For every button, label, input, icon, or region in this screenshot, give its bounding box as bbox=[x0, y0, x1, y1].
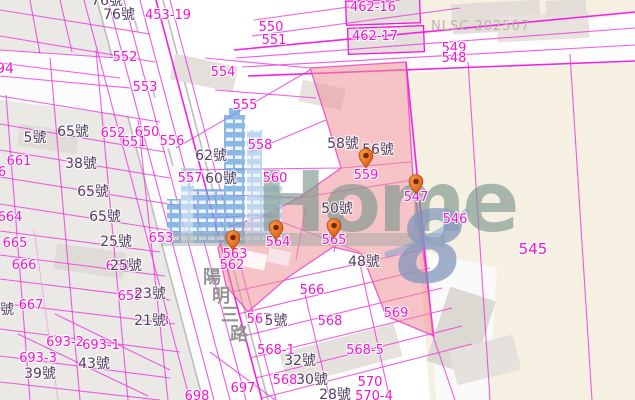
house-number-label: 58號 bbox=[327, 136, 359, 152]
parcel-label: 557 bbox=[178, 171, 203, 186]
parcel-label: 552 bbox=[113, 50, 138, 65]
house-number-label: 65號 bbox=[89, 209, 121, 225]
cadastral-map-canvas[interactable]: Home 8 NLSC 202507 陽明三路 453-19550551462-… bbox=[0, 0, 635, 400]
watermark-logo-numeral: 8 bbox=[396, 189, 466, 306]
house-number-label: 60號 bbox=[205, 171, 237, 187]
parcel-label: 553 bbox=[133, 80, 158, 95]
parcel-label: 664 bbox=[0, 210, 22, 225]
house-number-label: 30號 bbox=[296, 372, 328, 388]
parcel-label: 697 bbox=[231, 381, 256, 396]
parcel-label: 560 bbox=[263, 171, 288, 186]
house-number-label: 32號 bbox=[284, 353, 316, 369]
road-name-char: 三 bbox=[221, 305, 239, 326]
parcel-label: 653 bbox=[149, 231, 174, 246]
map-viewport[interactable]: Home 8 NLSC 202507 陽明三路 453-19550551462-… bbox=[0, 0, 635, 400]
parcel-label: 556 bbox=[160, 134, 185, 149]
parcel-label: 563 bbox=[223, 247, 248, 262]
house-number-label: 76號 bbox=[103, 7, 135, 23]
parcel-label: 462-17 bbox=[352, 29, 398, 44]
house-number-label: 38號 bbox=[65, 156, 97, 172]
house-number-label: 39號 bbox=[24, 366, 56, 382]
road-name-char: 陽 bbox=[203, 267, 221, 288]
nlsc-watermark-text: NLSC 202507 bbox=[431, 19, 530, 34]
parcel-label: 559 bbox=[354, 168, 379, 183]
parcel-label: 568 bbox=[273, 373, 298, 388]
parcel-label: 453-19 bbox=[145, 8, 191, 23]
house-number-label: 28號 bbox=[319, 387, 351, 400]
house-number-label: 48號 bbox=[348, 254, 380, 270]
parcel-label: 693-2 bbox=[46, 335, 84, 350]
parcel-label: 94 bbox=[0, 61, 14, 77]
parcel-label: 548 bbox=[442, 51, 467, 66]
house-number-label: 65號 bbox=[77, 184, 109, 200]
parcel-label: 570 bbox=[358, 375, 383, 390]
parcel-label: 555 bbox=[233, 98, 258, 113]
parcel-label: 545 bbox=[519, 240, 548, 258]
parcel-label: 568 bbox=[318, 314, 343, 329]
parcel-label: 558 bbox=[248, 138, 273, 153]
house-number-label: 50號 bbox=[321, 201, 353, 217]
parcel-label: 666 bbox=[12, 258, 37, 273]
road-name-char: 明 bbox=[212, 286, 230, 307]
parcel-label: 462-16 bbox=[350, 0, 396, 15]
parcel-label: 546 bbox=[443, 212, 468, 227]
house-number-label: 65號 bbox=[57, 124, 89, 140]
parcel-label: 667 bbox=[19, 298, 44, 313]
parcel-label: 665 bbox=[3, 236, 28, 251]
house-number-label: 5號 bbox=[265, 313, 288, 329]
parcel-label: 693-3 bbox=[19, 351, 57, 366]
parcel-label: 554 bbox=[211, 65, 236, 80]
parcel-label: 6 bbox=[0, 165, 6, 180]
house-number-label: 25號 bbox=[100, 234, 132, 250]
parcel-label: 652 bbox=[101, 126, 126, 141]
house-number-label: 21號 bbox=[134, 313, 166, 329]
parcel-label: 566 bbox=[300, 283, 325, 298]
parcel-label: 661 bbox=[7, 154, 32, 169]
house-number-label: 5號 bbox=[24, 130, 47, 146]
house-number-label: 43號 bbox=[78, 356, 110, 372]
parcel-label: 568-5 bbox=[346, 343, 384, 358]
parcel-label: 551 bbox=[262, 33, 287, 48]
house-number-label: 23號 bbox=[134, 286, 166, 302]
house-number-label: 62號 bbox=[195, 148, 227, 164]
house-number-label: 號 bbox=[0, 302, 14, 318]
parcel-label: 693-1 bbox=[82, 338, 120, 353]
parcel-label: 569 bbox=[384, 306, 409, 321]
house-number-label: 25號 bbox=[110, 258, 142, 274]
watermark-logo-text: Home bbox=[256, 153, 517, 251]
parcel-label: 698 bbox=[185, 389, 210, 400]
parcel-label: 570-4 bbox=[355, 389, 393, 400]
